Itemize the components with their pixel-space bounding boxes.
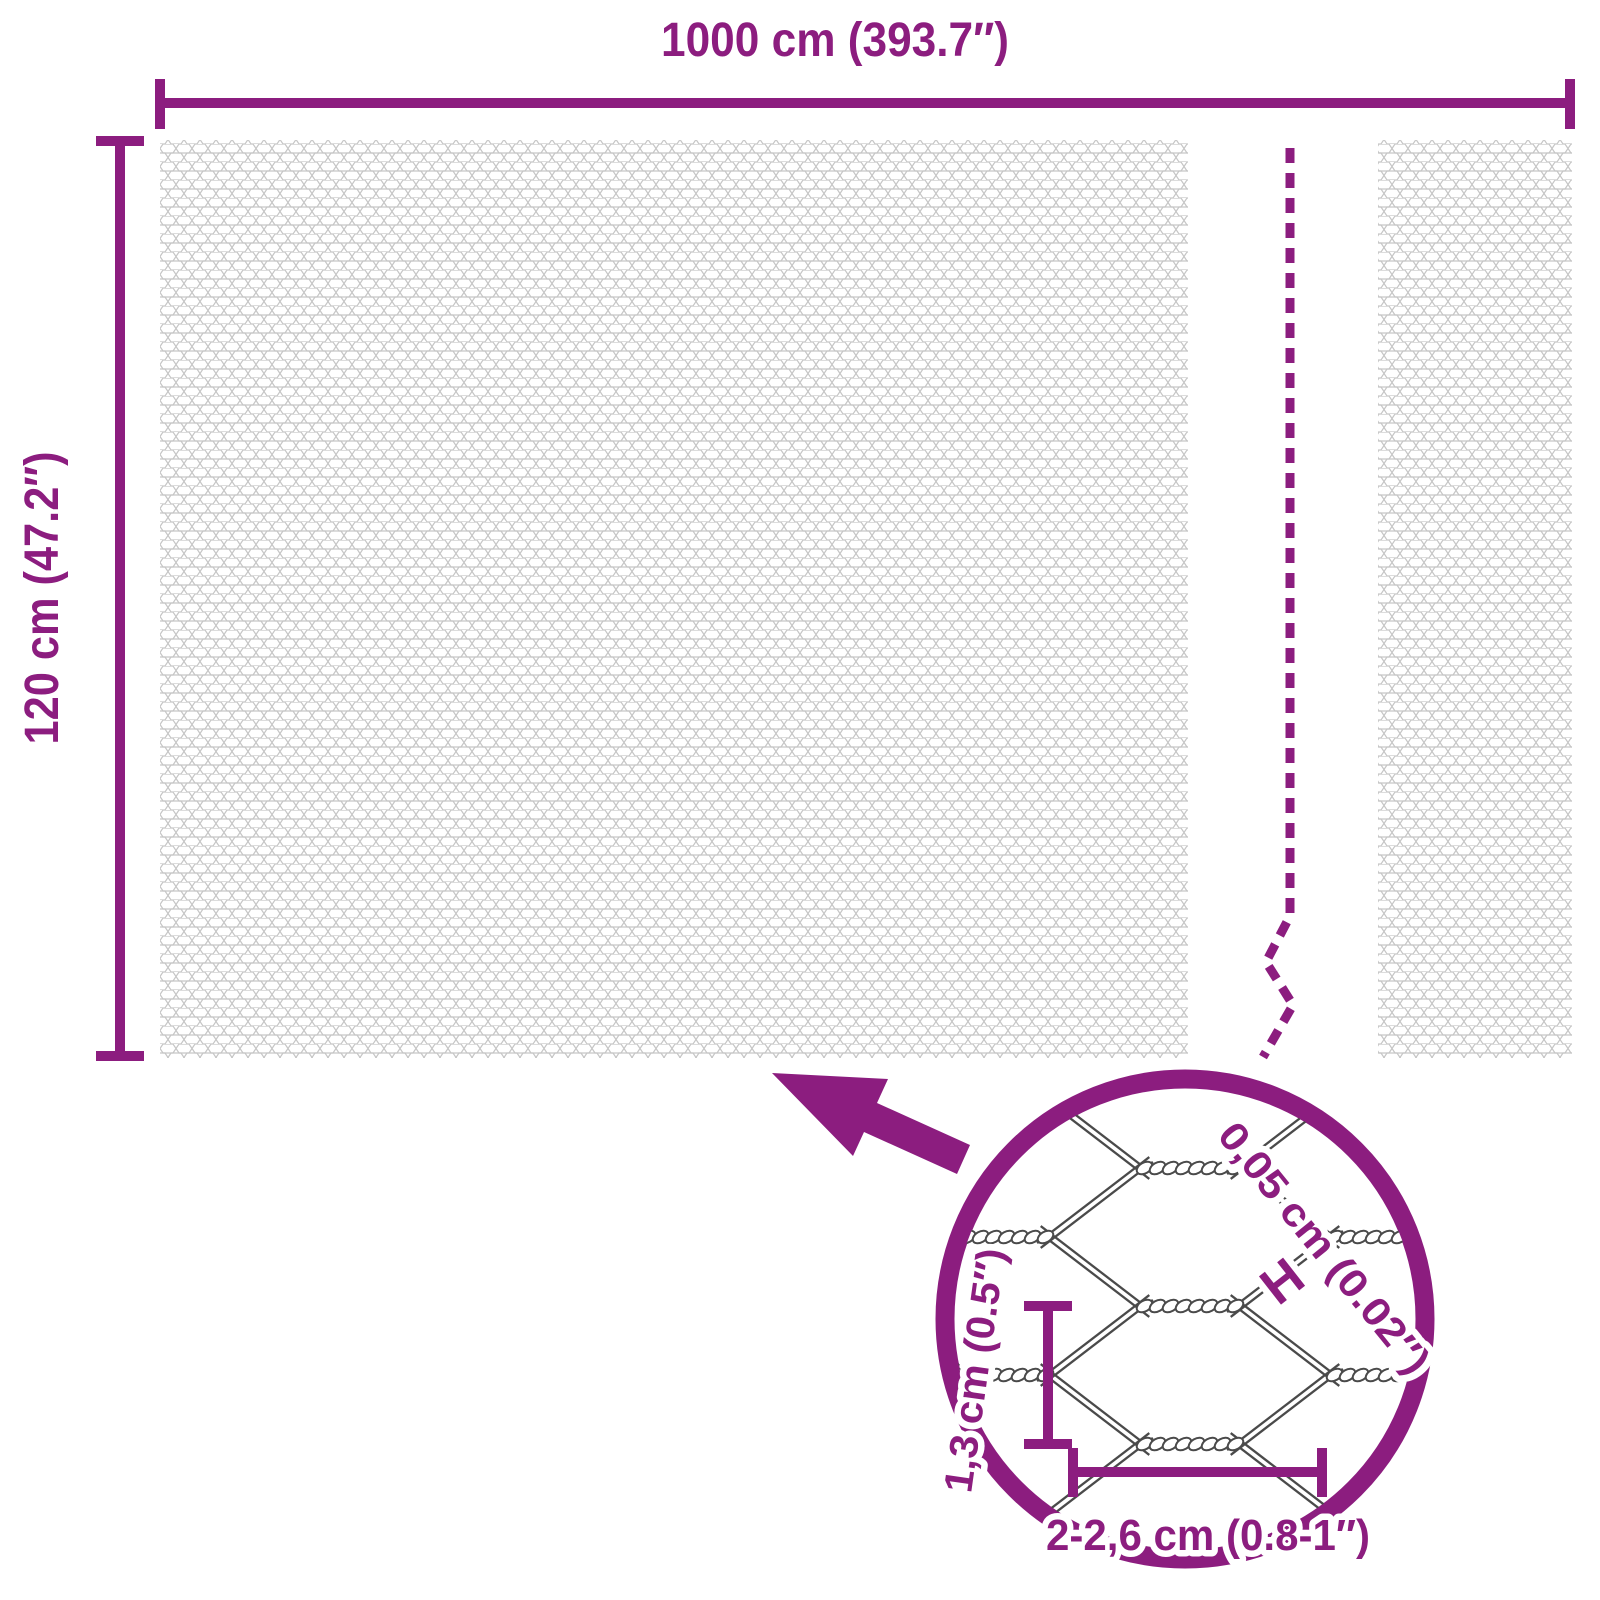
diagram-svg: 1000 cm (393.7″) 120 cm (47.2″) 0,05 cm … [0,0,1600,1600]
zoom-arrow-icon [772,1073,970,1174]
panel-break-icon [1263,148,1293,1057]
height-dimension-label: 120 cm (47.2″) [16,452,69,745]
detail-magnifier: 0,05 cm (0.02″) H 1,3 cm (0.5″) 2-2,6 cm… [847,1019,1533,1593]
mesh-panel-right [1378,140,1572,1058]
mesh-panel-left [160,140,1188,1058]
height-dimension-line [96,141,144,1056]
mesh-width-label: 2-2,6 cm (0.8-1″) [1046,1511,1370,1560]
product-dimension-diagram: 1000 cm (393.7″) 120 cm (47.2″) 0,05 cm … [0,0,1600,1600]
width-dimension-label: 1000 cm (393.7″) [661,14,1009,67]
width-dimension-line [160,79,1570,129]
